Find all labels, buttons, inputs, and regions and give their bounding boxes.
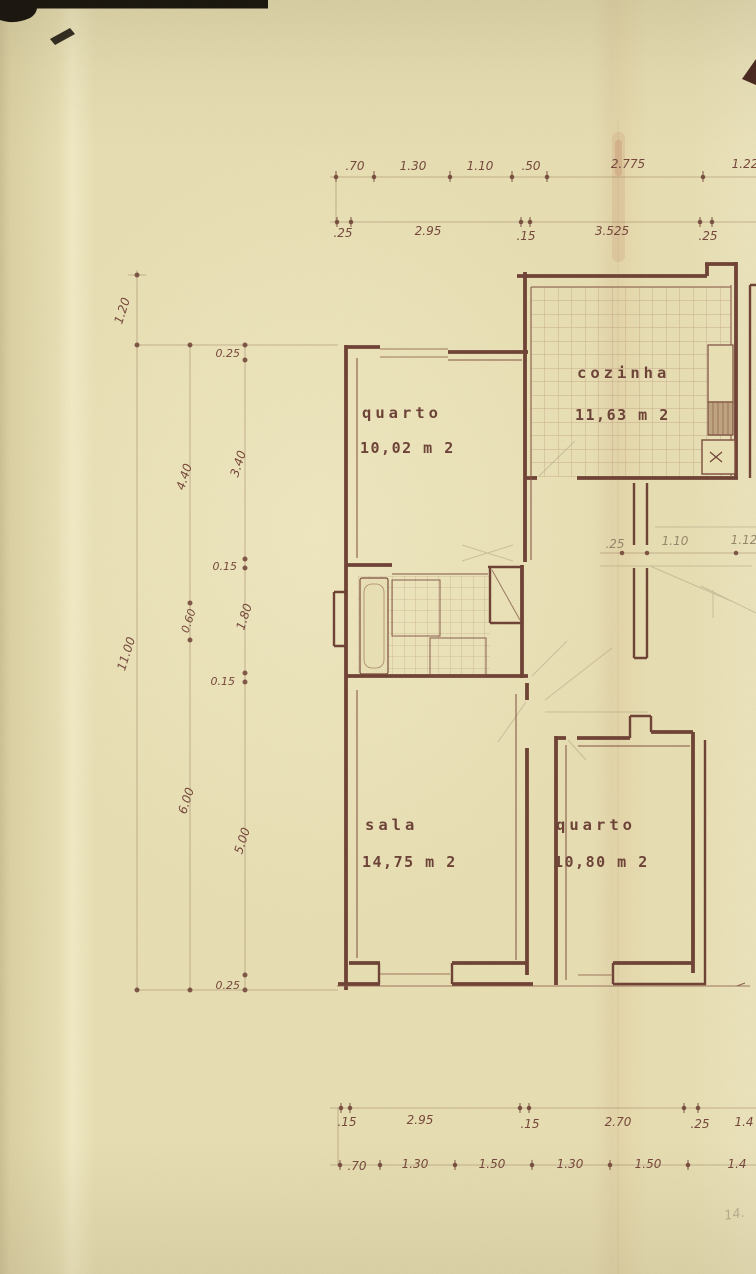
paper-grain-overlay <box>0 0 756 1274</box>
floor-plan-drawing: .70 1.30 1.10 .50 2.775 1.22 .25 2.95 .1… <box>0 0 756 1274</box>
scanned-floorplan-page: .70 1.30 1.10 .50 2.775 1.22 .25 2.95 .1… <box>0 0 756 1274</box>
